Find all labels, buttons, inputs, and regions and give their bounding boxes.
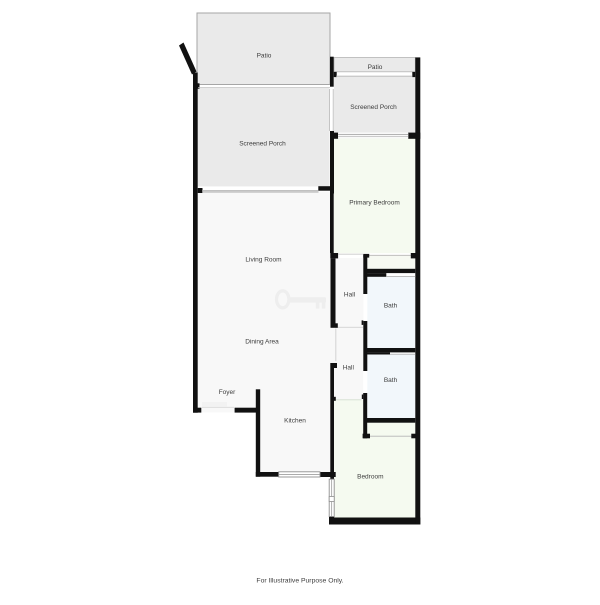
svg-text:Screened Porch: Screened Porch	[239, 141, 286, 148]
svg-text:Hall: Hall	[343, 364, 355, 371]
svg-text:Living Room: Living Room	[245, 257, 281, 264]
svg-text:Foyer: Foyer	[219, 389, 236, 396]
svg-text:Screened Porch: Screened Porch	[350, 104, 397, 111]
svg-text:Dining Area: Dining Area	[245, 339, 279, 346]
svg-text:For Illustrative Purpose Only.: For Illustrative Purpose Only.	[256, 578, 343, 585]
svg-text:Bath: Bath	[384, 303, 398, 310]
svg-text:Bedroom: Bedroom	[357, 474, 383, 481]
svg-text:Patio: Patio	[257, 53, 272, 60]
svg-text:Primary Bedroom: Primary Bedroom	[349, 200, 400, 207]
svg-text:Patio: Patio	[368, 64, 383, 71]
svg-text:Bath: Bath	[384, 377, 398, 384]
svg-text:Hall: Hall	[344, 292, 356, 299]
svg-text:Kitchen: Kitchen	[284, 417, 306, 424]
